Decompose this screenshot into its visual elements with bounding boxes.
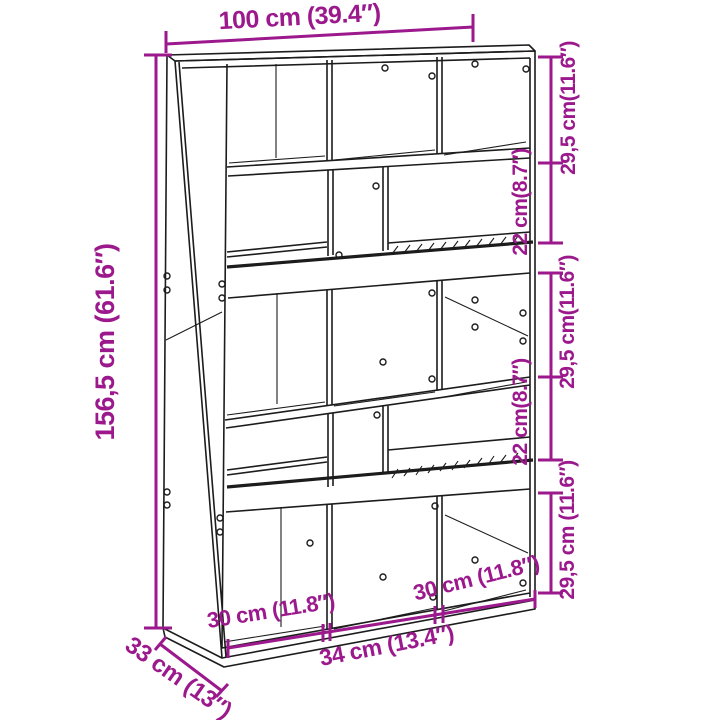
right-section-label-3: 29,5 cm(11.6″) bbox=[556, 255, 579, 389]
screw-hole bbox=[374, 412, 380, 418]
dimension-width: 100 cm (39.4″) bbox=[166, 0, 473, 53]
right-section-label-4: 22 cm(8.7″) bbox=[509, 358, 532, 465]
compartment-width-label-3: 30 cm (11.8″) bbox=[411, 550, 542, 605]
screw-hole bbox=[219, 295, 225, 301]
screw-hole bbox=[307, 540, 313, 546]
screw-hole bbox=[217, 515, 223, 521]
hatch-shading bbox=[392, 236, 518, 478]
dimension-depth: 33 cm (13″) bbox=[120, 631, 237, 720]
screw-hole bbox=[429, 290, 435, 296]
screw-hole bbox=[217, 529, 223, 535]
screw-hole bbox=[164, 502, 170, 508]
width-label: 100 cm (39.4″) bbox=[218, 0, 381, 35]
screw-hole bbox=[219, 281, 225, 287]
screw-hole bbox=[520, 338, 526, 344]
screw-hole bbox=[520, 310, 526, 316]
height-dimension-line bbox=[144, 55, 172, 628]
height-label: 156,5 cm (61.6″) bbox=[90, 243, 120, 440]
screw-hole bbox=[380, 359, 386, 365]
dimension-right-sections: 29,5 cm(11.6″) 22 cm(8.7″) 29,5 cm(11.6″… bbox=[509, 41, 580, 599]
screw-hole bbox=[520, 580, 526, 586]
divider-panels bbox=[327, 57, 442, 629]
screw-hole bbox=[380, 574, 386, 580]
screw-hole bbox=[164, 489, 170, 495]
screw-hole bbox=[373, 183, 379, 189]
furniture-dimension-diagram: 100 cm (39.4″) 156,5 cm (61.6″) 29,5 cm(… bbox=[0, 0, 720, 720]
dimension-bottom-widths: 30 cm (11.8″) 34 cm (13.4″) 30 cm (11.8″… bbox=[205, 550, 542, 671]
right-section-label-5: 29,5 cm (11.6″) bbox=[556, 460, 579, 599]
right-section-label-1: 29,5 cm(11.6″) bbox=[557, 41, 580, 175]
screw-hole bbox=[429, 376, 435, 382]
screw-hole bbox=[382, 65, 388, 71]
screw-hole bbox=[472, 324, 478, 330]
screw-hole bbox=[429, 73, 435, 79]
diagram-canvas: 100 cm (39.4″) 156,5 cm (61.6″) 29,5 cm(… bbox=[0, 0, 720, 720]
screw-hole bbox=[523, 66, 529, 72]
screw-hole bbox=[472, 297, 478, 303]
left-back-edge bbox=[163, 55, 167, 628]
right-section-label-2: 22 cm(8.7″) bbox=[509, 148, 532, 255]
screw-hole bbox=[472, 61, 478, 67]
dimension-height: 156,5 cm (61.6″) bbox=[90, 55, 172, 628]
shelf-front-edges bbox=[227, 242, 533, 487]
side-panel-joint bbox=[166, 312, 222, 340]
screw-holes bbox=[164, 61, 529, 600]
compartment-width-label-1: 30 cm (11.8″) bbox=[205, 588, 336, 633]
depth-label: 33 cm (13″) bbox=[120, 631, 237, 720]
screw-hole bbox=[472, 557, 478, 563]
